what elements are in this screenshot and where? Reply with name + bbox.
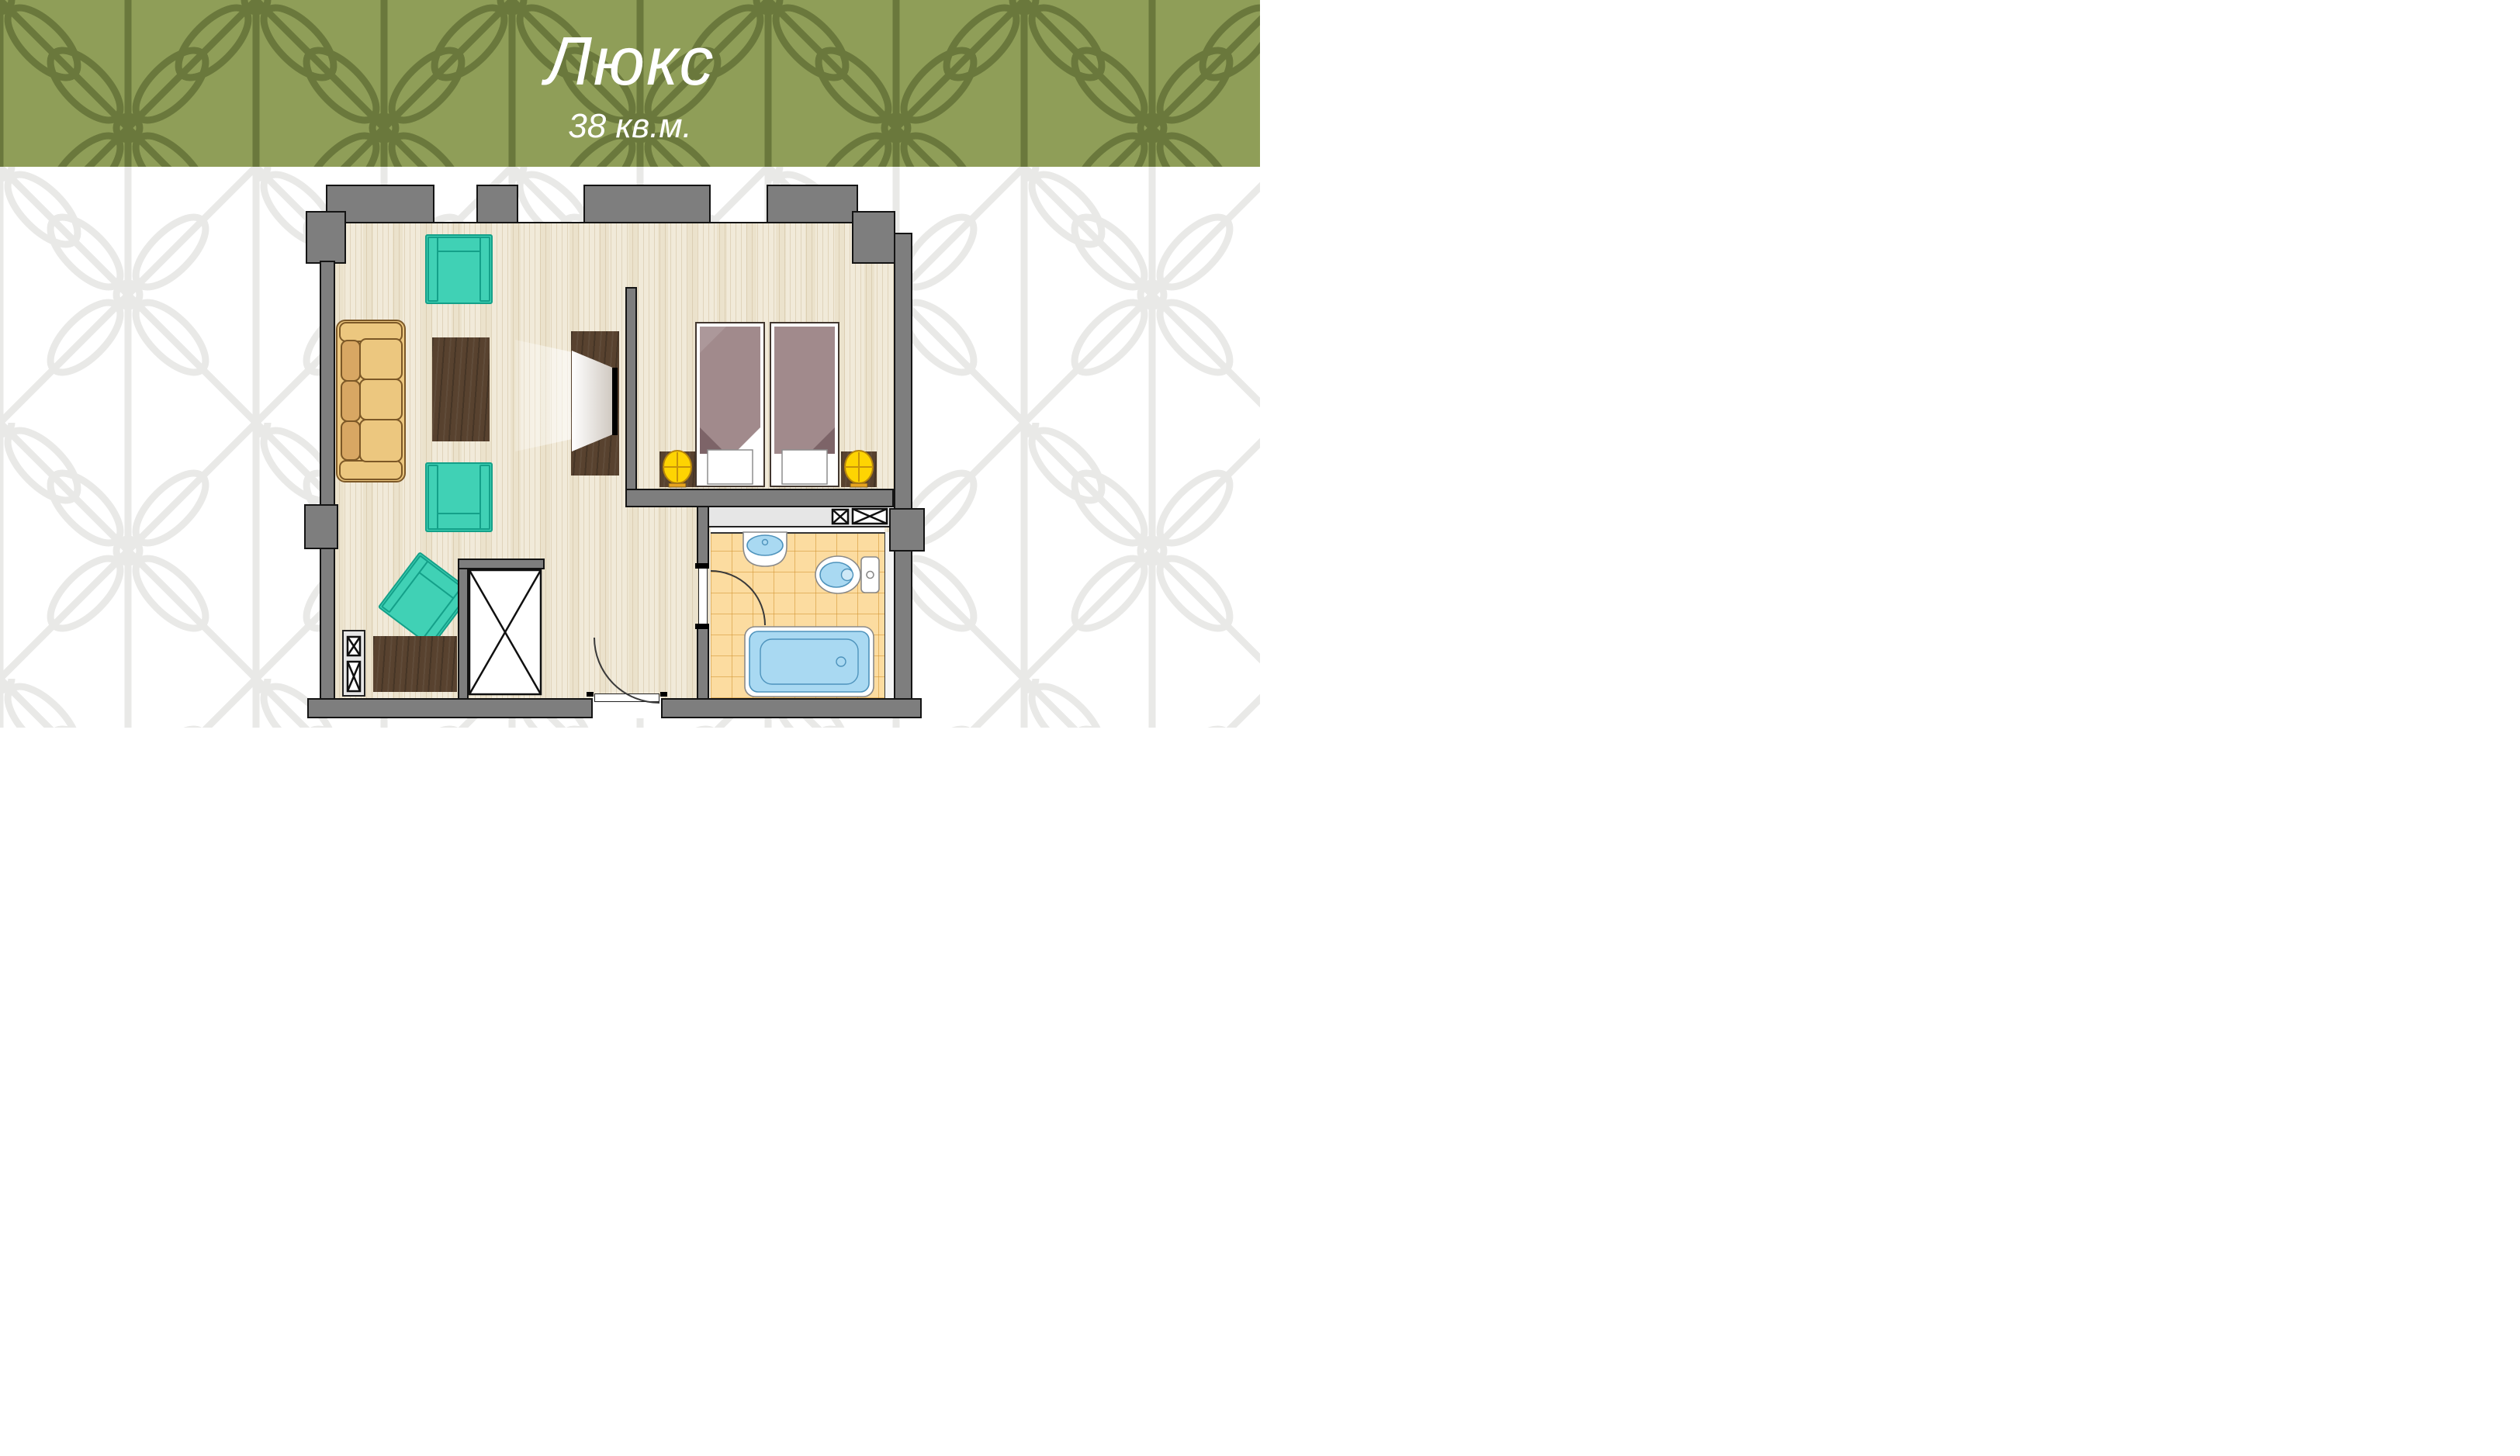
desk <box>373 636 457 692</box>
tv-beam <box>515 340 572 451</box>
closet-box-icon <box>852 508 888 524</box>
wall-top-4 <box>767 185 858 223</box>
wall-bathroom-upper <box>697 506 709 568</box>
tv-cone <box>572 351 613 451</box>
wall-top-3 <box>583 185 711 223</box>
table-lamp-icon <box>661 451 694 489</box>
shelf-box-icon <box>347 661 361 692</box>
duct-strip <box>884 532 894 698</box>
wardrobe-wall <box>458 559 545 569</box>
wall-left <box>320 261 335 700</box>
wardrobe <box>469 569 542 695</box>
bathroom-door-arc-icon <box>695 563 773 635</box>
shelf-box-icon <box>347 636 361 656</box>
wardrobe-wall <box>458 559 469 700</box>
wall-bottom-right <box>661 698 922 718</box>
pillar-top-left <box>306 211 346 264</box>
wall-bedroom-bottom <box>625 489 894 507</box>
wall-partition <box>625 287 637 507</box>
wall-bottom-left <box>307 698 593 718</box>
closet-box-icon <box>832 509 849 524</box>
coffee-table <box>432 337 490 441</box>
wall-bathroom-lower <box>697 625 709 700</box>
tv-screen-icon <box>612 368 618 435</box>
sink-icon <box>743 532 787 566</box>
pillar-top-right <box>852 211 895 264</box>
entrance-door-arc-icon <box>583 625 670 706</box>
table-lamp-icon <box>843 451 875 489</box>
pillar-left <box>304 504 338 549</box>
floor-plan <box>0 0 1260 728</box>
pillar-right <box>889 508 925 552</box>
wall-right <box>894 233 912 700</box>
page: Люкс 38 кв.м. <box>0 0 1260 728</box>
sofa-armrest <box>339 460 403 480</box>
toilet-icon <box>815 556 879 593</box>
bathtub-icon <box>745 627 874 697</box>
wall-top-2 <box>476 185 518 223</box>
